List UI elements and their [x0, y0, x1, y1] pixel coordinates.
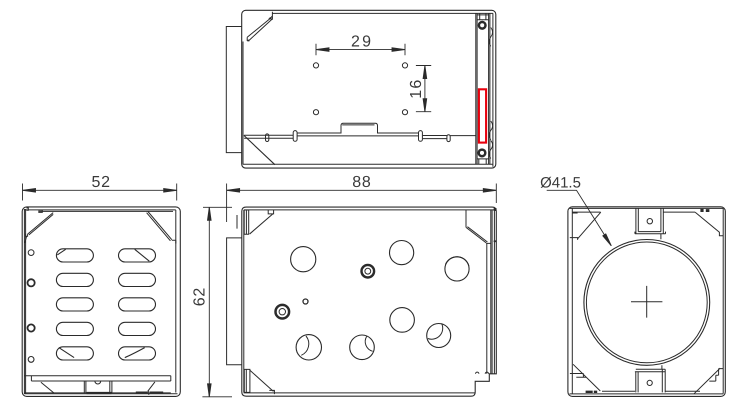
- svg-text:62: 62: [191, 288, 208, 307]
- svg-text:Ø41.5: Ø41.5: [540, 174, 581, 191]
- svg-text:16: 16: [408, 80, 425, 99]
- svg-text:88: 88: [352, 174, 371, 191]
- svg-text:52: 52: [92, 174, 111, 191]
- svg-text:29: 29: [351, 33, 371, 50]
